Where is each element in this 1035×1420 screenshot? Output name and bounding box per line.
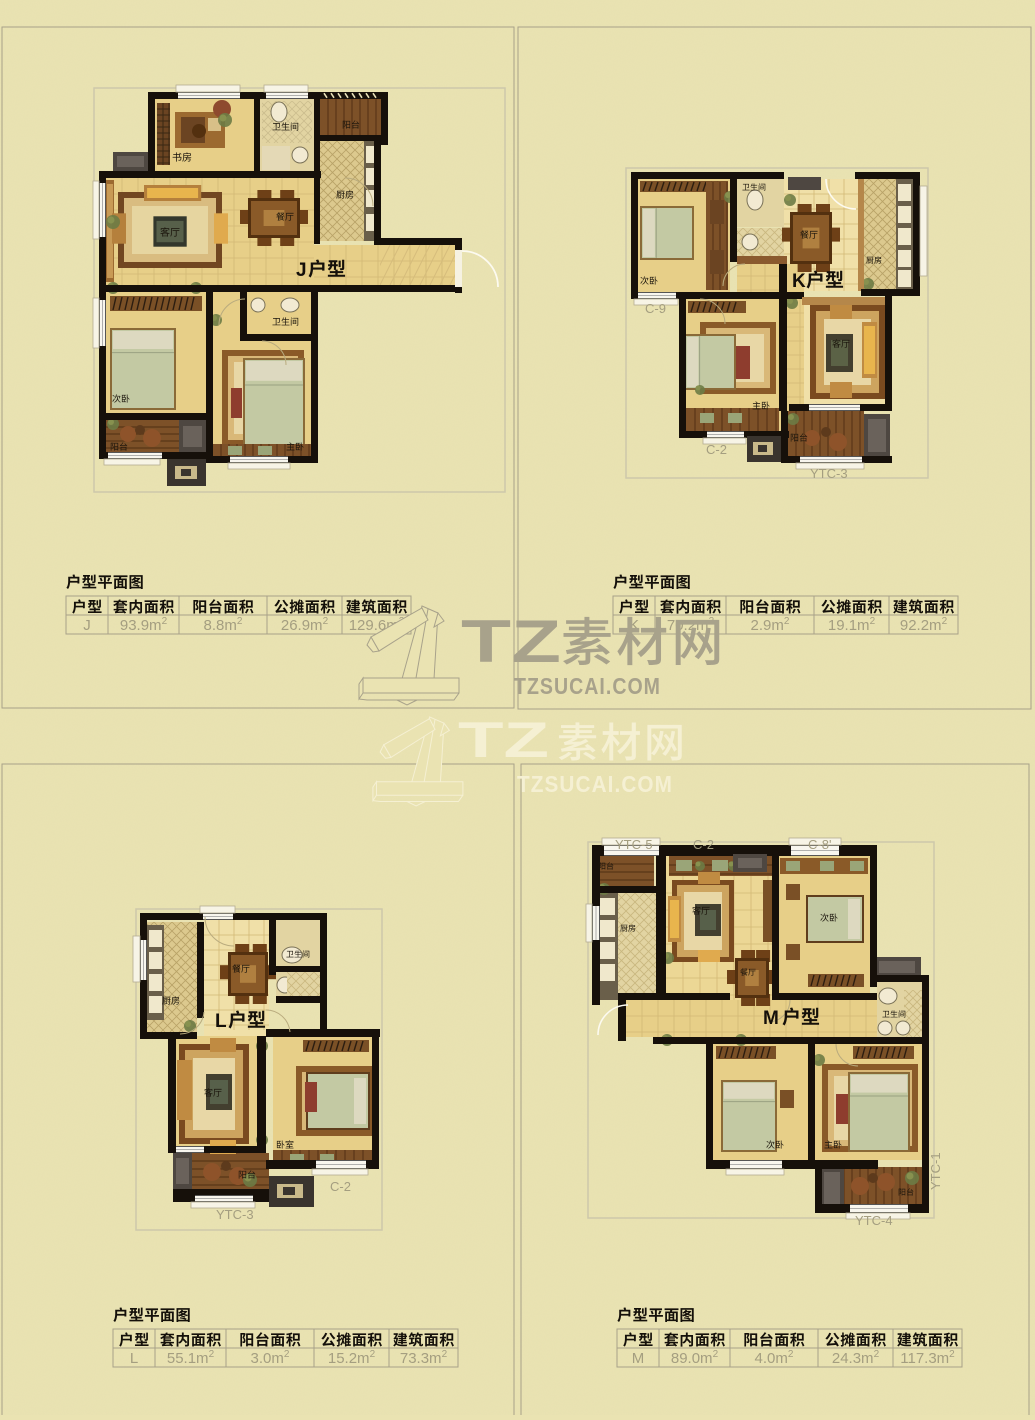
svg-text:C-8': C-8' — [808, 837, 831, 852]
svg-text:26.9m2: 26.9m2 — [281, 616, 329, 634]
svg-text:M: M — [763, 1008, 779, 1029]
svg-text:YTC-1: YTC-1 — [928, 1152, 943, 1190]
svg-text:TZSUCAI.COM: TZSUCAI.COM — [517, 771, 673, 797]
svg-text:YTC-3: YTC-3 — [810, 466, 848, 481]
svg-text:C-2: C-2 — [330, 1179, 351, 1194]
svg-text:YTC-5: YTC-5 — [615, 837, 653, 852]
svg-text:K: K — [792, 271, 806, 292]
svg-text:117.3m2: 117.3m2 — [900, 1349, 955, 1367]
svg-text:92.2m2: 92.2m2 — [900, 616, 948, 634]
svg-text:YTC-4: YTC-4 — [855, 1213, 893, 1228]
svg-text:M: M — [632, 1350, 645, 1367]
svg-text:L: L — [215, 1011, 227, 1032]
svg-text:15.2m2: 15.2m2 — [328, 1349, 376, 1367]
svg-text:C-9: C-9 — [645, 301, 666, 316]
svg-text:J: J — [83, 617, 91, 634]
svg-text:TZSUCAI.COM: TZSUCAI.COM — [514, 673, 661, 699]
svg-text:TZ: TZ — [461, 608, 561, 675]
svg-text:19.1m2: 19.1m2 — [828, 616, 876, 634]
svg-text:C-2: C-2 — [693, 837, 714, 852]
svg-text:YTC-3: YTC-3 — [216, 1207, 254, 1222]
svg-text:J: J — [296, 260, 307, 281]
svg-text:24.3m2: 24.3m2 — [832, 1349, 880, 1367]
svg-text:L: L — [130, 1350, 138, 1367]
svg-text:TZ: TZ — [458, 712, 549, 768]
svg-text:55.1m2: 55.1m2 — [167, 1349, 215, 1367]
svg-text:89.0m2: 89.0m2 — [671, 1349, 719, 1367]
svg-text:93.9m2: 93.9m2 — [120, 616, 168, 634]
svg-text:73.3m2: 73.3m2 — [400, 1349, 448, 1367]
svg-text:C-2: C-2 — [706, 442, 727, 457]
